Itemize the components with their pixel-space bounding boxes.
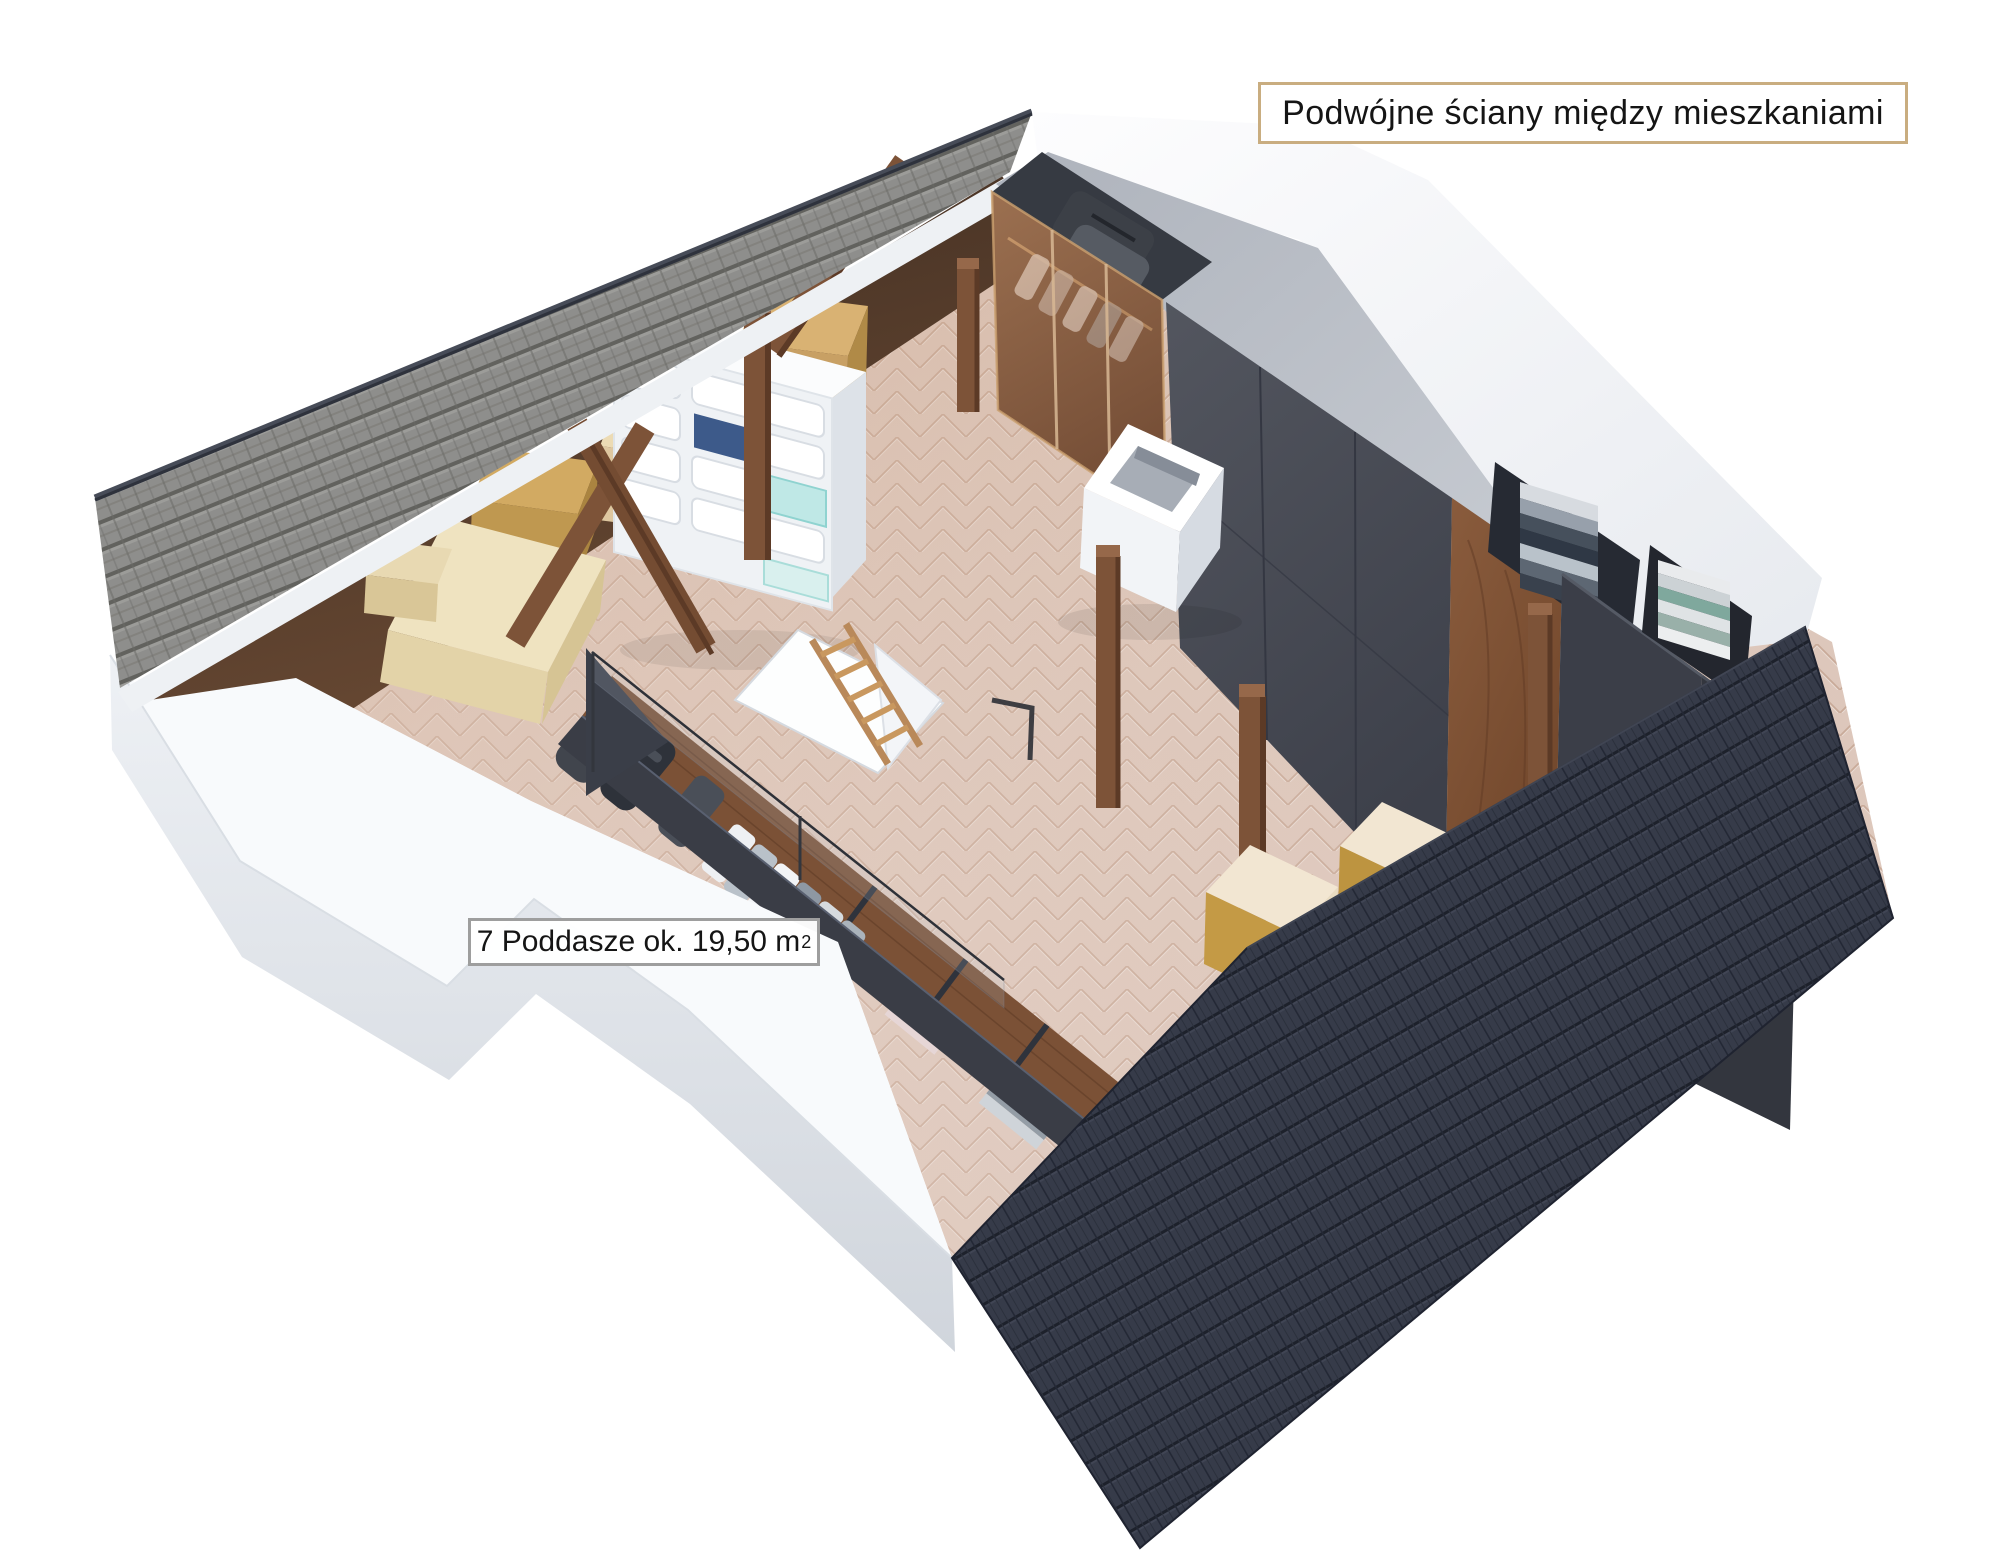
double-walls-label-text: Podwójne ściany między mieszkaniami xyxy=(1282,94,1884,133)
double-walls-label: Podwójne ściany między mieszkaniami xyxy=(1258,82,1908,144)
attic-area-label: 7 Poddasze ok. 19,50 m2 xyxy=(468,918,820,966)
attic-floorplan-render: Podwójne ściany między mieszkaniami 7 Po… xyxy=(0,0,2000,1560)
render-canvas xyxy=(0,0,2000,1560)
attic-area-label-text: 7 Poddasze ok. 19,50 m xyxy=(477,925,801,959)
